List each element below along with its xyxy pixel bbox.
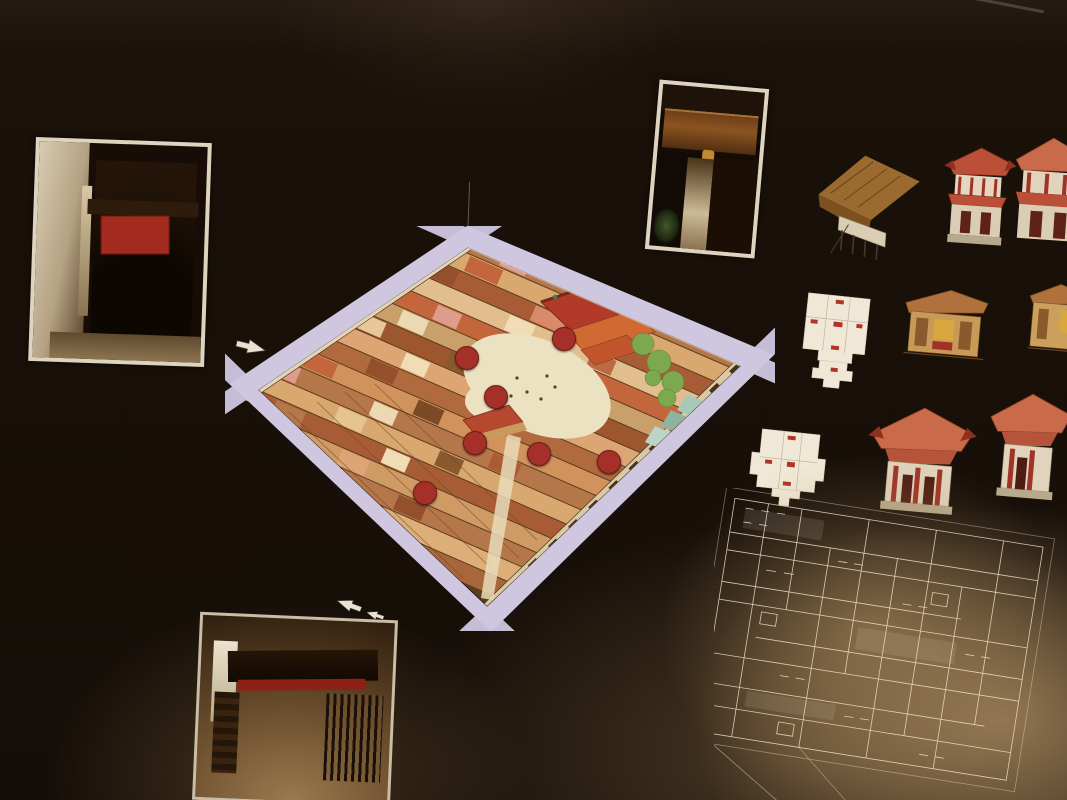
photo-armenian-street-entrance [28, 137, 212, 367]
map-marker-2 [463, 431, 487, 455]
george-town-survey-plan [714, 488, 1067, 800]
exhibit-panel [0, 0, 1067, 800]
caption-cross-section [888, 372, 999, 384]
floor-plan-drawing-1 [787, 288, 886, 409]
bungalow-drawing [806, 144, 932, 264]
cross-section-drawing [895, 282, 997, 370]
map-marker-7 [484, 385, 508, 409]
map-marker-3 [527, 442, 551, 466]
intro-paragraph-cn [2, 0, 385, 15]
gate-sign-strip [238, 679, 365, 691]
clanhouse-drawing [1006, 129, 1067, 256]
ceiling-streak [906, 0, 1044, 13]
map-marker-1 [552, 327, 576, 351]
sin-kang-signboard [100, 216, 169, 255]
intro-cn-line-fragment [2, 0, 385, 15]
map-marker-5 [413, 481, 437, 505]
photo-floor [49, 332, 201, 363]
dev-side-note-2 [996, 114, 1066, 119]
dev-side-note-1 [1002, 68, 1067, 73]
intro-paragraph-en [388, 1, 687, 20]
intro-cn-lines [2, 0, 385, 15]
dev-paragraph-2 [768, 104, 995, 120]
photo-main-gate-night [192, 612, 398, 800]
dev-paragraph-1 [772, 52, 999, 68]
iron-gate [323, 693, 384, 783]
gate-door [212, 692, 240, 773]
cross-section-drawing-2 [1021, 277, 1067, 364]
map-marker-6 [597, 450, 621, 474]
map-marker-4 [455, 346, 479, 370]
gate-beam [228, 650, 378, 682]
